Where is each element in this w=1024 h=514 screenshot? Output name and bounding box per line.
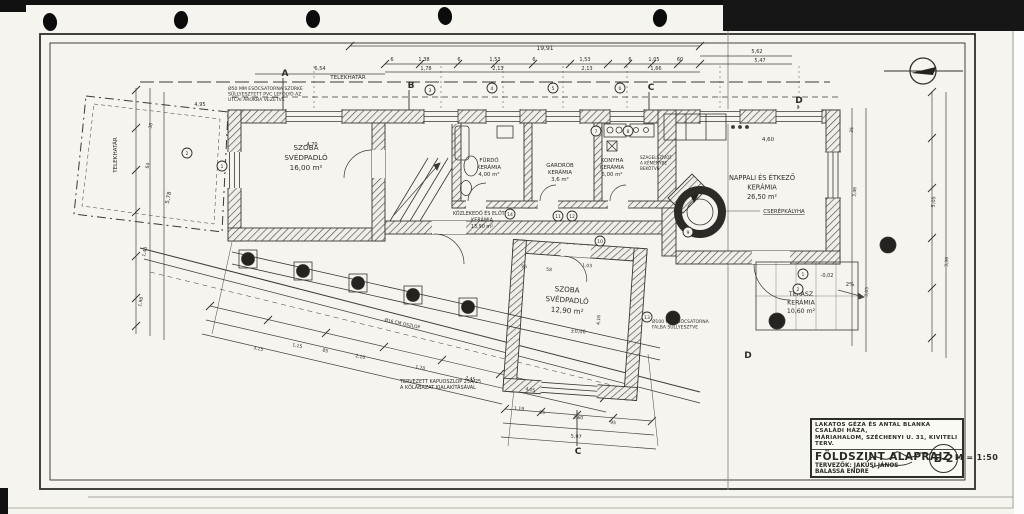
dimension-text: 3,05: [864, 287, 871, 298]
svg-text:7: 7: [595, 129, 598, 135]
room-label: KERÁMIA: [477, 164, 501, 171]
note-text: UTCAI ÁROKBA VEZETVE: [228, 96, 285, 103]
ref-marker: 10: [595, 236, 605, 246]
room-label: 4,00 m²: [478, 171, 499, 178]
ref-marker: 14: [505, 209, 515, 219]
svg-text:6: 6: [619, 86, 622, 92]
room-label: KERÁMIA: [787, 298, 815, 307]
svg-text:9: 9: [687, 230, 690, 236]
dimension-text: 58: [546, 267, 552, 273]
ref-marker: 9: [683, 227, 693, 237]
dimension-text: 95: [539, 410, 545, 416]
svg-text:3: 3: [429, 88, 432, 94]
room-label: SVÉDPADLÓ: [284, 153, 328, 162]
section-letter: D: [744, 351, 751, 361]
dimension-text: 1,05: [648, 57, 659, 63]
room-label: 3,6 m²: [551, 176, 569, 183]
dimension-text: 6,54: [314, 66, 325, 72]
dimension-text: 60: [677, 57, 683, 63]
ref-marker: 2: [182, 148, 192, 158]
ref-marker: 1: [798, 269, 808, 279]
ref-marker: 8: [623, 126, 633, 136]
dimension-text: 35: [849, 127, 855, 133]
annotation-text: TELEKHATÁR: [112, 137, 119, 174]
svg-text:14: 14: [507, 212, 513, 218]
svg-text:12: 12: [569, 214, 575, 220]
section-letter: C: [648, 83, 655, 93]
svg-text:5: 5: [552, 86, 555, 92]
ref-marker: 4: [487, 83, 497, 93]
dimension-text: 2,13: [492, 66, 503, 72]
room-label: GARDRÓB: [546, 162, 574, 169]
svg-text:10: 10: [597, 239, 603, 245]
dimension-text: 5,47: [754, 58, 765, 64]
room-label: KERÁMIA: [471, 216, 494, 223]
ref-marker: 13: [642, 312, 652, 322]
ref-marker: 5: [548, 83, 558, 93]
svg-text:1: 1: [221, 164, 224, 170]
ref-marker: 2: [793, 284, 803, 294]
svg-text:1: 1: [802, 272, 805, 278]
ref-marker: 1: [217, 161, 227, 171]
ref-marker: 3: [425, 85, 435, 95]
room-label: KONYHA: [601, 158, 624, 164]
drawing-scale: M = 1:50: [955, 453, 998, 462]
dimension-text: 3,36: [944, 257, 951, 268]
dimension-text: 1,19: [514, 406, 525, 413]
note-text: BEKÖTVE: [640, 166, 660, 171]
note-text: A KÉMÉNYBE: [640, 160, 667, 165]
ref-marker: 12: [567, 211, 577, 221]
section-letter: C: [575, 447, 582, 457]
room-label: 6,00 m²: [601, 171, 622, 178]
dimension-text: 1,53: [489, 57, 500, 63]
project-line1: LAKATOS GÉZA ÉS ANTAL BLANKA CSALÁDI HÁZ…: [815, 422, 959, 435]
dimension-text: 95: [610, 420, 616, 426]
dimension-text: 6: [390, 57, 393, 63]
dimension-text: 5,62: [751, 49, 762, 55]
room-label: 10,60 m²: [787, 308, 816, 315]
annotation-text: TELEKHATÁR: [329, 74, 366, 81]
room-label: 13,90 m²: [471, 224, 493, 230]
designer-2: BALASSA ENDRE: [815, 469, 869, 475]
room-label: 26,50 m²: [747, 193, 777, 201]
room-label: KERÁMIA: [548, 169, 572, 176]
section-letter: D: [795, 96, 802, 106]
designer-1: JAKUSI JÁNOS: [854, 463, 899, 469]
room-label: KÖZLEKEDŐ ÉS ELŐTÉR: [453, 209, 512, 217]
dimension-text: 3,60: [573, 415, 584, 422]
note-text: Ø50 MM ESŐCSATORNA SZÜRKE: [228, 85, 303, 92]
svg-text:2: 2: [186, 151, 189, 157]
dimension-text: 96: [521, 264, 527, 270]
designers-label: TERVEZŐK:: [815, 463, 852, 469]
dimension-text: 1,66: [650, 66, 661, 72]
annotation-text: -0,02: [821, 273, 834, 279]
annotation-text: CSERÉPKÁLYHA: [763, 207, 805, 215]
svg-text:2: 2: [797, 287, 800, 293]
scanned-floor-plan-sheet: SZOBASVÉDPADLÓ16,00 m²FÜRDŐKERÁMIA4,00 m…: [0, 0, 1024, 514]
dimension-text: 2,13: [581, 66, 592, 72]
svg-text:4: 4: [491, 86, 494, 92]
dimension-text: 6: [628, 57, 631, 63]
note-text: SÜLLYESZTETT PVC LEFOLYÓ AZ: [228, 91, 301, 98]
dimension-text: 5,05: [931, 196, 938, 208]
ref-marker: 11: [553, 211, 563, 221]
annotation-text: 2%: [846, 282, 855, 288]
ref-marker: 6: [615, 83, 625, 93]
svg-text:8: 8: [627, 129, 630, 135]
scan-black-corner: [723, 0, 1024, 31]
dimension-text: 4,16: [596, 315, 603, 326]
room-label: KERÁMIA: [747, 183, 777, 192]
title-block: LAKATOS GÉZA ÉS ANTAL BLANKA CSALÁDI HÁZ…: [810, 418, 964, 478]
room-label: FÜRDŐ: [479, 157, 498, 164]
annotation-text: ±0,00: [570, 328, 586, 335]
dimension-text: 1,03: [582, 263, 593, 270]
dimension-text: 1,78: [420, 66, 431, 72]
room-label: 16,00 m²: [290, 163, 323, 172]
dimension-text: 6: [532, 57, 535, 63]
section-letter: A: [282, 69, 289, 79]
dimension-text: 4,95: [194, 102, 205, 108]
svg-text:13: 13: [644, 315, 650, 321]
room-label: SZOBA: [554, 284, 580, 295]
dimension-text: 4,60: [762, 137, 775, 143]
ref-marker: 7: [591, 126, 601, 136]
note-text: FALBA SÜLLYESZTVE: [652, 324, 698, 331]
dimension-text: 4,70: [306, 142, 317, 148]
dimension-text: 5,97: [570, 434, 582, 441]
svg-text:11: 11: [555, 214, 561, 220]
note-text: A KŐLÁBAZAT KIALAKÍTÁSÁVAL: [400, 384, 476, 391]
sheet-code-badge: E-2: [929, 444, 958, 473]
section-letter: B: [408, 81, 415, 91]
dimension-text: 1,53: [579, 57, 590, 63]
note-text: Ø100 MM ESŐCSATORNA: [652, 318, 710, 325]
note-text: SZAGELSZÍVÓT: [640, 155, 672, 160]
room-label: KERÁMIA: [600, 164, 624, 171]
dimension-text: 6: [457, 57, 460, 63]
room-label: NAPPALI ÉS ÉTKEZŐ: [729, 173, 795, 182]
dimension-text: 1,38: [418, 57, 429, 63]
dimension-text: 19,91: [536, 45, 553, 52]
dimension-text: 3,46: [852, 187, 859, 198]
